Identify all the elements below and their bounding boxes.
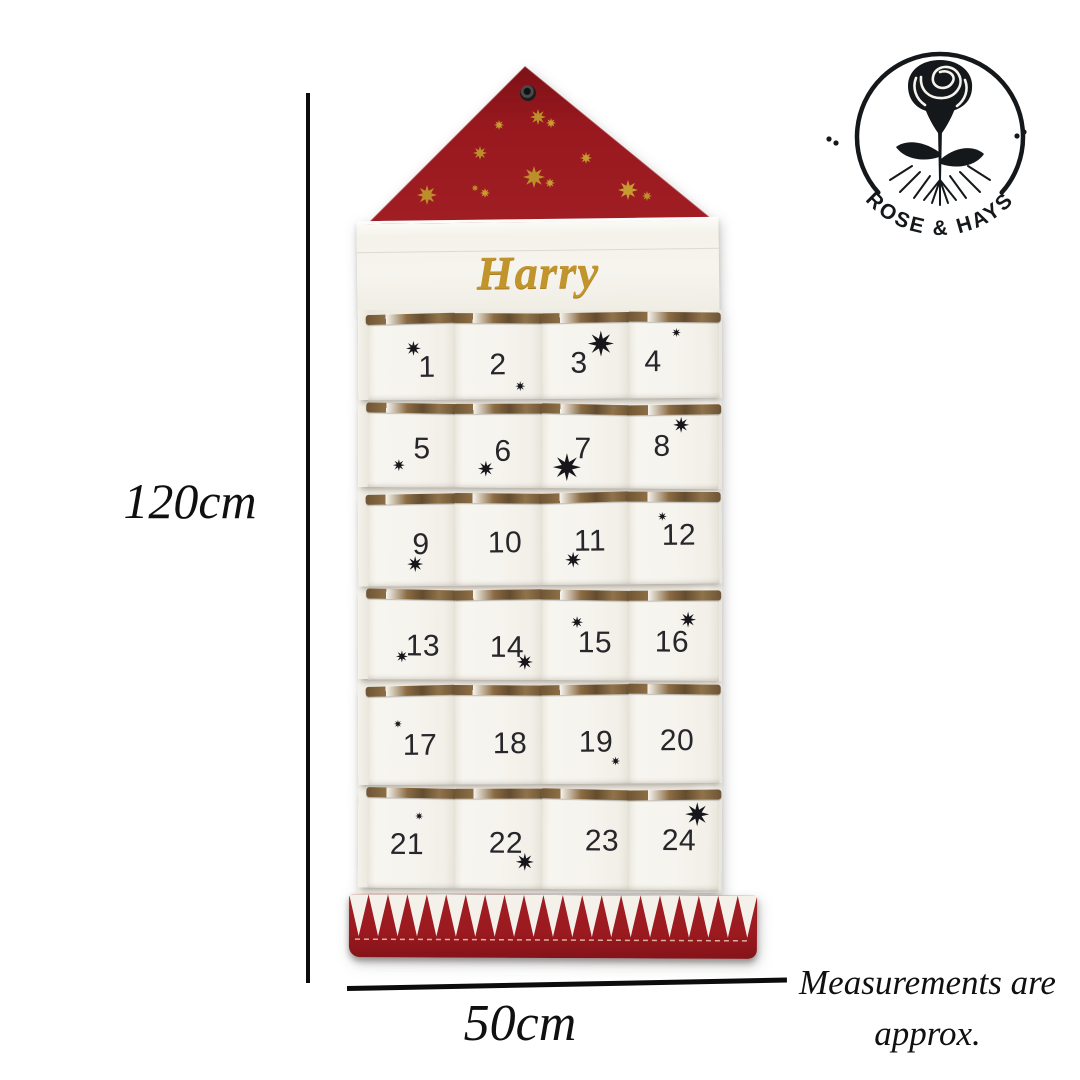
- pocket-6: 6: [455, 403, 543, 488]
- triangle-fabric: [365, 66, 711, 226]
- gold-star-icon: [494, 120, 504, 130]
- black-star-icon: [415, 812, 423, 820]
- pocket-row-2: 5678: [358, 403, 723, 489]
- pocket-number: 10: [488, 526, 523, 560]
- gold-star-icon: [523, 166, 545, 188]
- pocket-number: 18: [493, 727, 528, 761]
- pocket-row-1: 1234: [358, 312, 723, 401]
- pocket-trim: [627, 404, 721, 415]
- bottom-sawtooth-band: [349, 894, 757, 959]
- pocket-1: 1: [368, 314, 456, 401]
- pocket-trim: [453, 685, 544, 696]
- pocket-9: 9: [368, 494, 456, 587]
- black-star-icon: [565, 552, 581, 568]
- gold-star-icon: [546, 118, 556, 128]
- pocket-15: 15: [542, 590, 629, 680]
- pocket-number: 23: [585, 824, 620, 858]
- pocket-number: 24: [662, 824, 697, 858]
- pocket-row-3: 9101112: [358, 491, 723, 586]
- black-star-icon: [405, 340, 420, 355]
- pocket-2: 2: [455, 313, 543, 400]
- gold-star-icon: [530, 109, 546, 125]
- pocket-row-5: 17181920: [358, 684, 723, 785]
- black-star-icon: [407, 556, 423, 572]
- hanging-triangle: [363, 62, 713, 228]
- black-star-icon: [396, 650, 408, 662]
- gold-star-icon: [472, 185, 479, 192]
- pocket-trim: [366, 588, 457, 600]
- pocket-number: 13: [406, 629, 441, 663]
- pocket-number: 8: [653, 430, 670, 464]
- black-star-icon: [673, 417, 689, 433]
- black-star-icon: [515, 381, 525, 391]
- pocket-trim: [453, 313, 544, 323]
- black-star-icon: [394, 720, 402, 728]
- black-star-icon: [571, 616, 583, 628]
- black-star-icon: [671, 328, 680, 337]
- pocket-trim: [627, 684, 721, 695]
- black-star-icon: [685, 802, 709, 826]
- pocket-11: 11: [542, 492, 630, 585]
- pocket-trim: [627, 312, 721, 323]
- pocket-16: 16: [629, 590, 719, 680]
- black-star-icon: [393, 459, 405, 471]
- pocket-24: 24: [629, 790, 720, 891]
- pocket-8: 8: [629, 405, 720, 490]
- pocket-number: 15: [578, 626, 613, 660]
- pocket-number: 6: [494, 435, 511, 469]
- pocket-trim: [540, 788, 631, 800]
- pocket-number: 4: [644, 345, 661, 379]
- pocket-number: 21: [390, 828, 425, 862]
- pocket-7: 7: [542, 404, 630, 489]
- pocket-number: 5: [413, 432, 430, 466]
- pocket-trim: [540, 589, 631, 601]
- sawtooth-edge: [349, 894, 757, 959]
- gold-star-icon: [473, 146, 487, 160]
- black-star-icon: [680, 612, 696, 628]
- pocket-trim: [453, 789, 544, 799]
- black-star-icon: [657, 511, 666, 520]
- pocket-21: 21: [368, 788, 456, 889]
- pocket-3: 3: [542, 312, 630, 399]
- pocket-22: 22: [455, 788, 543, 889]
- black-star-icon: [517, 654, 533, 670]
- pocket-trim: [453, 589, 544, 600]
- pocket-trim: [366, 685, 457, 697]
- black-star-icon: [553, 453, 581, 481]
- pocket-number: 19: [579, 726, 614, 760]
- pocket-trim: [453, 493, 544, 504]
- pocket-18: 18: [455, 685, 543, 785]
- gold-star-icon: [417, 185, 437, 205]
- pocket-trim: [366, 313, 457, 325]
- pocket-19: 19: [542, 684, 630, 784]
- pocket-trim: [627, 492, 721, 502]
- pocket-number: 3: [570, 347, 587, 381]
- pocket-trim: [627, 590, 721, 600]
- pocket-number: 17: [403, 729, 438, 763]
- black-star-icon: [478, 461, 494, 477]
- pocket-23: 23: [542, 789, 630, 890]
- grommet-icon: [520, 85, 536, 101]
- pocket-14: 14: [455, 590, 542, 680]
- black-star-icon: [611, 756, 620, 765]
- pocket-trim: [366, 402, 457, 414]
- gold-star-icon: [545, 178, 555, 188]
- black-star-icon: [516, 853, 534, 871]
- personalized-name: Harry: [357, 244, 720, 302]
- gold-star-icon: [618, 180, 638, 200]
- pocket-4: 4: [629, 312, 720, 399]
- product-image: 120cm 50cm Measurements are approx.: [0, 0, 1080, 1080]
- pocket-5: 5: [368, 403, 456, 488]
- pocket-trim: [453, 404, 544, 414]
- pocket-17: 17: [368, 686, 456, 786]
- pocket-trim: [366, 787, 457, 799]
- pocket-trim: [540, 403, 631, 415]
- gold-star-icon: [480, 188, 490, 198]
- pocket-trim: [366, 493, 457, 505]
- pocket-number: 16: [655, 626, 690, 660]
- advent-calendar: Harry 1234567891011121314151617181920212…: [0, 0, 1080, 1080]
- pocket-trim: [627, 790, 721, 801]
- pocket-number: 2: [489, 348, 506, 382]
- pocket-12: 12: [629, 491, 720, 584]
- pocket-20: 20: [629, 684, 720, 784]
- name-panel: Harry: [356, 217, 719, 317]
- pocket-13: 13: [368, 589, 455, 679]
- pocket-trim: [540, 312, 631, 323]
- pocket-number: 20: [660, 724, 695, 758]
- pocket-row-6: 21222324: [358, 788, 723, 891]
- pocket-grid: 123456789101112131415161718192021222324: [358, 310, 722, 893]
- pocket-number: 12: [662, 519, 697, 553]
- pocket-number: 1: [418, 351, 435, 385]
- pocket-10: 10: [455, 493, 543, 586]
- gold-star-icon: [642, 191, 652, 201]
- pocket-trim: [540, 684, 631, 695]
- pocket-trim: [540, 491, 631, 504]
- black-star-icon: [588, 330, 614, 356]
- pocket-row-4: 13141516: [358, 589, 722, 681]
